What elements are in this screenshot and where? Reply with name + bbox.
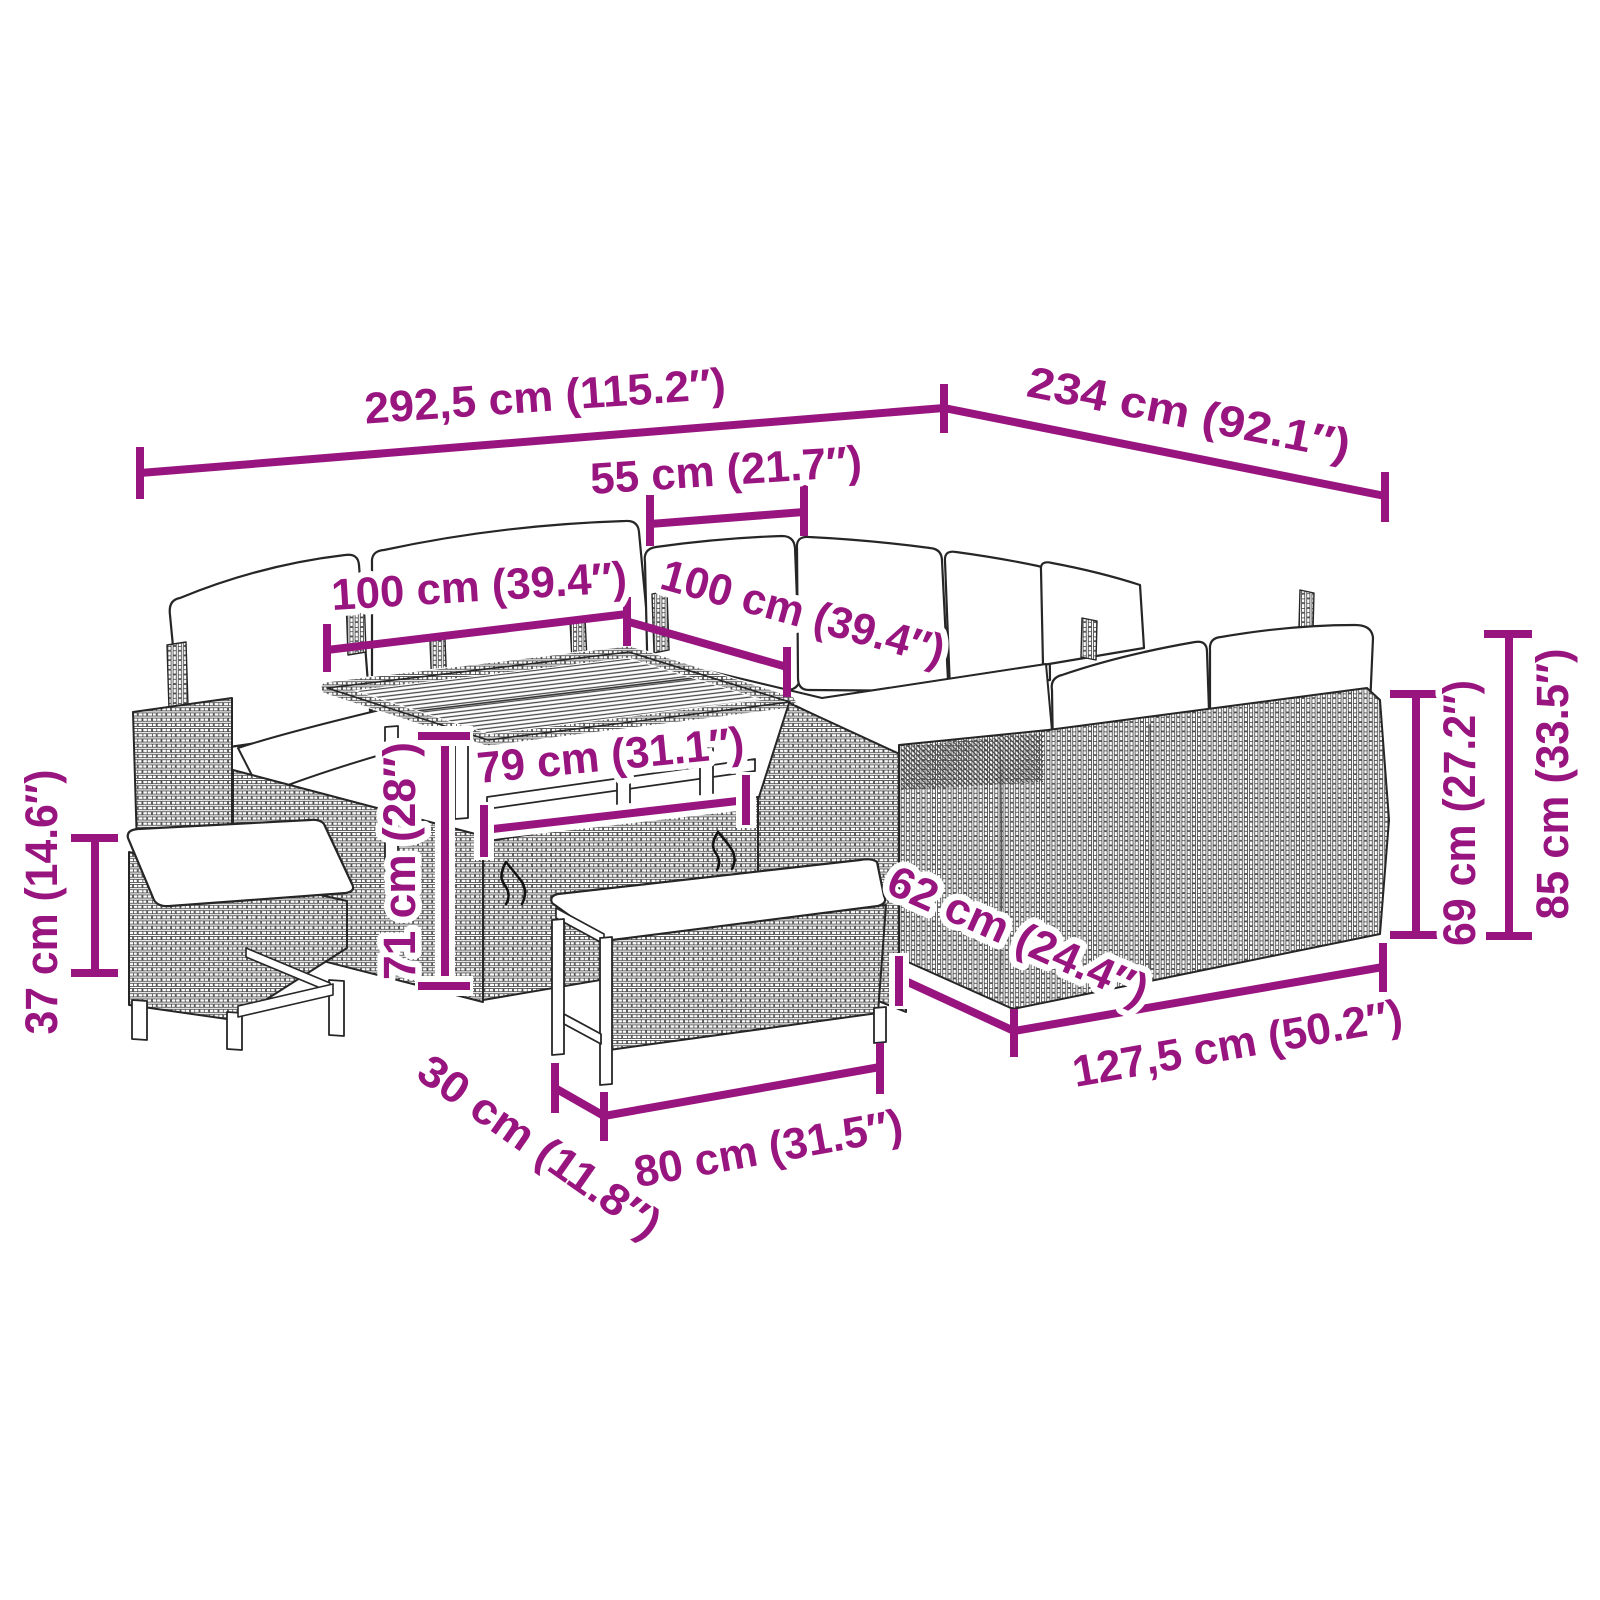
svg-text:69 cm (27.2″): 69 cm (27.2″) bbox=[1434, 680, 1485, 946]
svg-text:37 cm (14.6″): 37 cm (14.6″) bbox=[16, 770, 67, 1035]
svg-text:85 cm (33.5″): 85 cm (33.5″) bbox=[1527, 649, 1578, 920]
svg-text:71 cm (28″): 71 cm (28″) bbox=[374, 742, 425, 980]
